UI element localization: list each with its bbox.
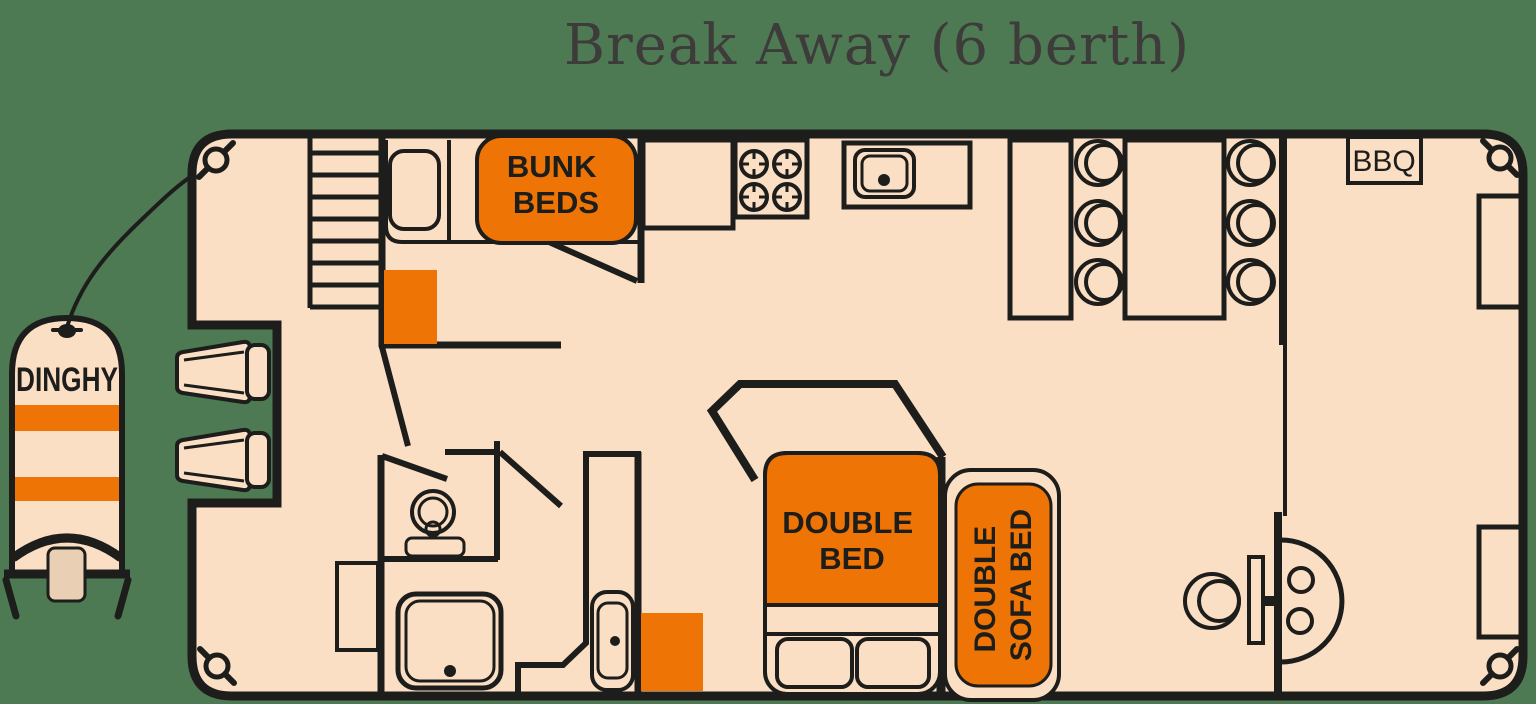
mooring-rope bbox=[67, 166, 207, 327]
bed-pillow bbox=[777, 639, 852, 687]
dinghy-stripe bbox=[15, 477, 119, 501]
floor-plan-page: Break Away (6 berth) DINGHY bbox=[0, 0, 1536, 704]
bbq-label: BBQ bbox=[1352, 145, 1415, 178]
storage-unit bbox=[641, 613, 703, 691]
dinghy-label: DINGHY bbox=[16, 361, 118, 399]
page-title: Break Away (6 berth) bbox=[564, 13, 1190, 78]
deck-chair bbox=[177, 342, 269, 402]
deck-chair bbox=[177, 430, 269, 490]
double-sofa-bed: DOUBLE SOFA BED bbox=[945, 470, 1059, 700]
floor-plan-canvas: Break Away (6 berth) DINGHY bbox=[0, 0, 1536, 704]
bunk-beds-label: BUNK BEDS bbox=[507, 149, 605, 220]
bunk-wardrobe bbox=[384, 270, 437, 344]
dinghy-stripe bbox=[15, 405, 119, 431]
bed-pillow bbox=[857, 639, 929, 687]
outboard-motor-icon bbox=[48, 548, 85, 601]
